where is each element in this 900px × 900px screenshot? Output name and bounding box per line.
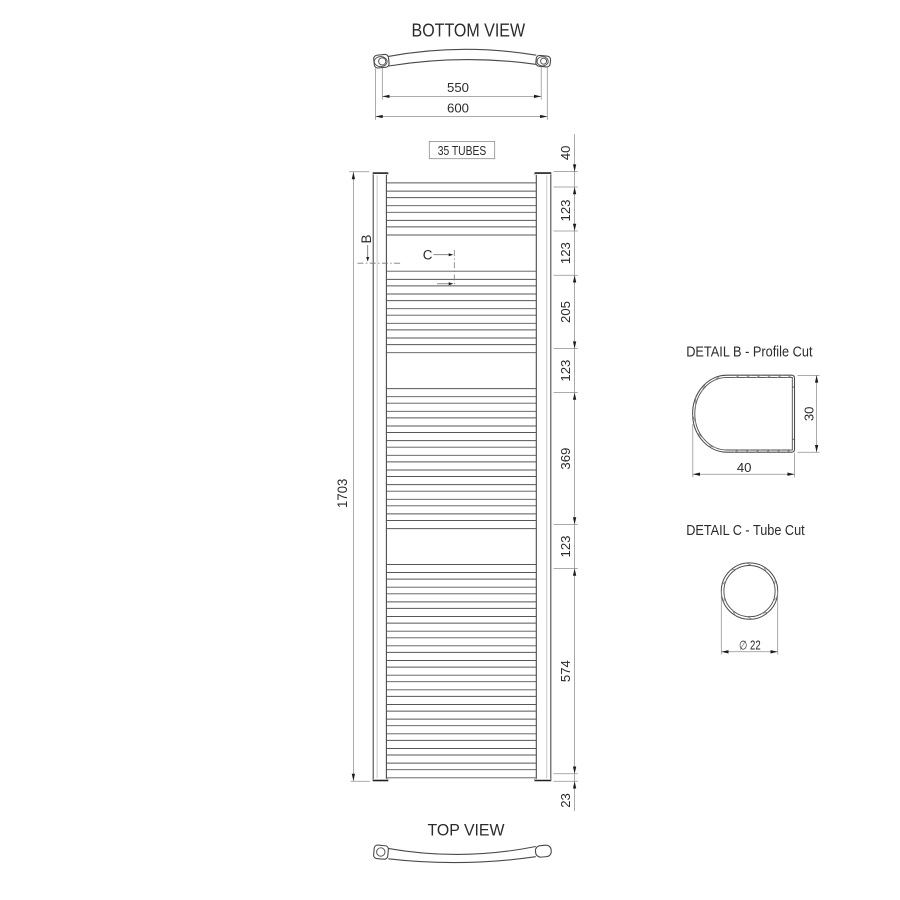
svg-text:DETAIL C - Tube Cut: DETAIL C - Tube Cut bbox=[686, 523, 805, 539]
svg-text:40: 40 bbox=[737, 460, 752, 475]
svg-text:C: C bbox=[423, 248, 433, 263]
svg-text:40: 40 bbox=[558, 146, 573, 161]
svg-text:123: 123 bbox=[558, 200, 573, 222]
svg-text:35 TUBES: 35 TUBES bbox=[438, 144, 487, 158]
svg-text:123: 123 bbox=[558, 242, 573, 264]
svg-text:∅ 22: ∅ 22 bbox=[739, 638, 761, 652]
svg-text:BOTTOM VIEW: BOTTOM VIEW bbox=[412, 21, 526, 41]
svg-text:205: 205 bbox=[558, 301, 573, 323]
svg-text:123: 123 bbox=[558, 536, 573, 558]
svg-text:B: B bbox=[359, 234, 374, 243]
svg-text:23: 23 bbox=[558, 793, 573, 808]
svg-text:DETAIL B - Profile Cut: DETAIL B - Profile Cut bbox=[686, 344, 812, 360]
svg-text:123: 123 bbox=[558, 360, 573, 382]
svg-text:574: 574 bbox=[558, 660, 573, 682]
svg-text:TOP VIEW: TOP VIEW bbox=[428, 821, 505, 840]
svg-text:550: 550 bbox=[447, 80, 469, 95]
svg-text:369: 369 bbox=[558, 448, 573, 470]
svg-text:30: 30 bbox=[802, 407, 817, 422]
svg-text:600: 600 bbox=[447, 100, 469, 115]
svg-text:1703: 1703 bbox=[334, 478, 350, 507]
